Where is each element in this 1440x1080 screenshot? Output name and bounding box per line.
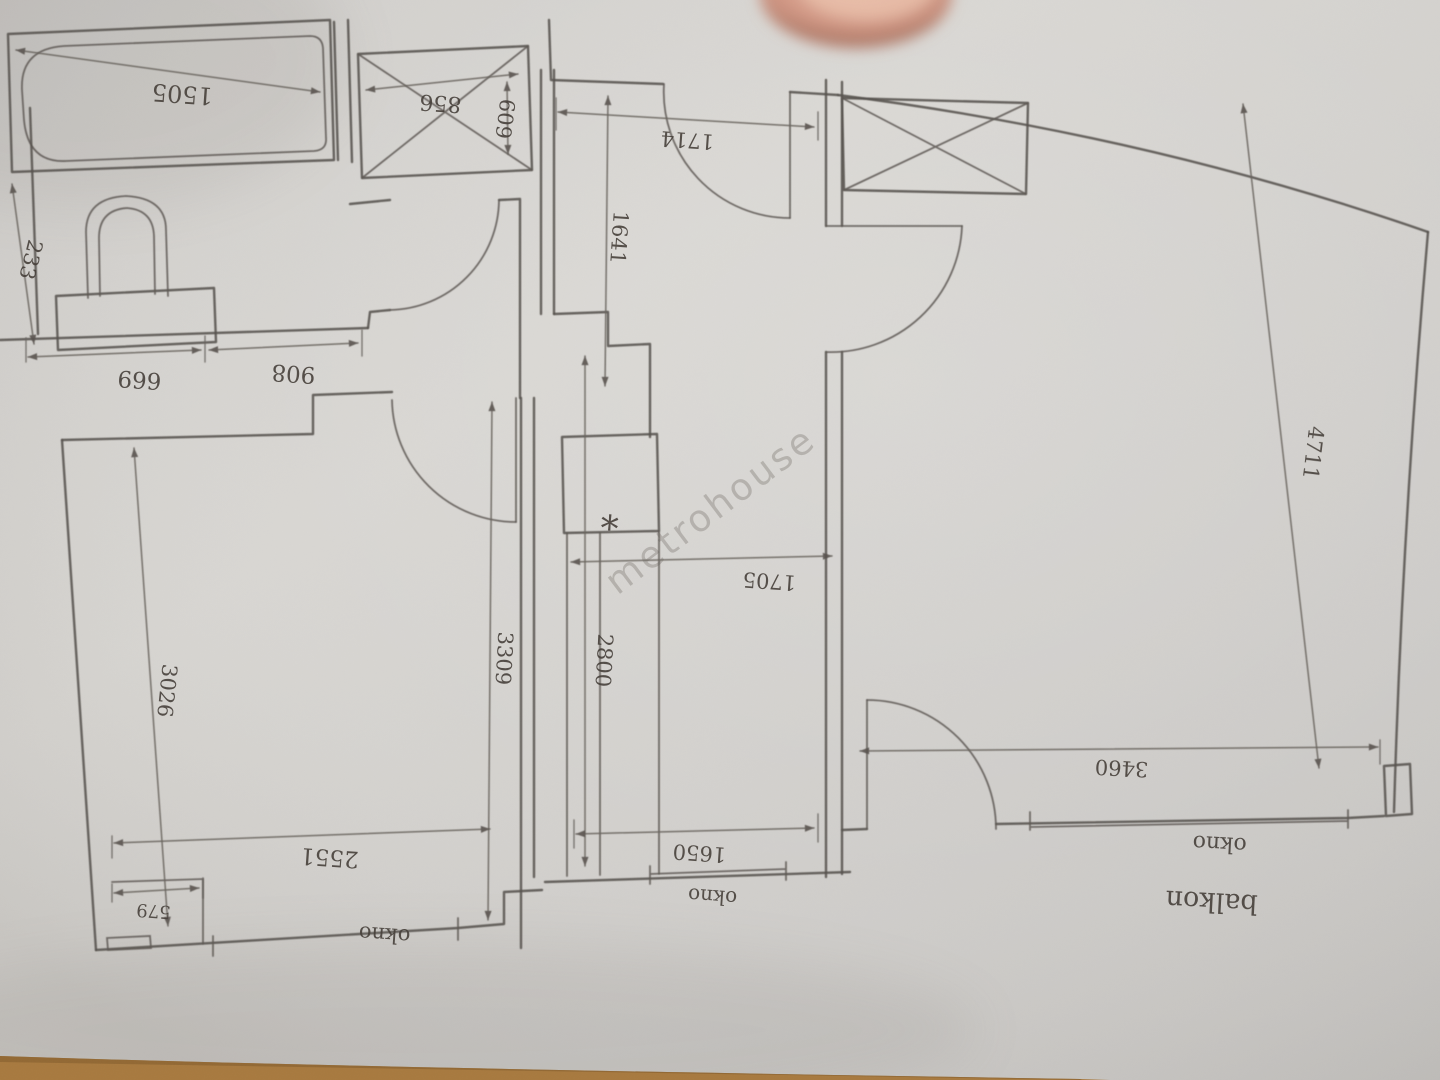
- photo-grain: [0, 0, 1440, 1080]
- floor-plan-photo: metrohouse: [0, 0, 1440, 1080]
